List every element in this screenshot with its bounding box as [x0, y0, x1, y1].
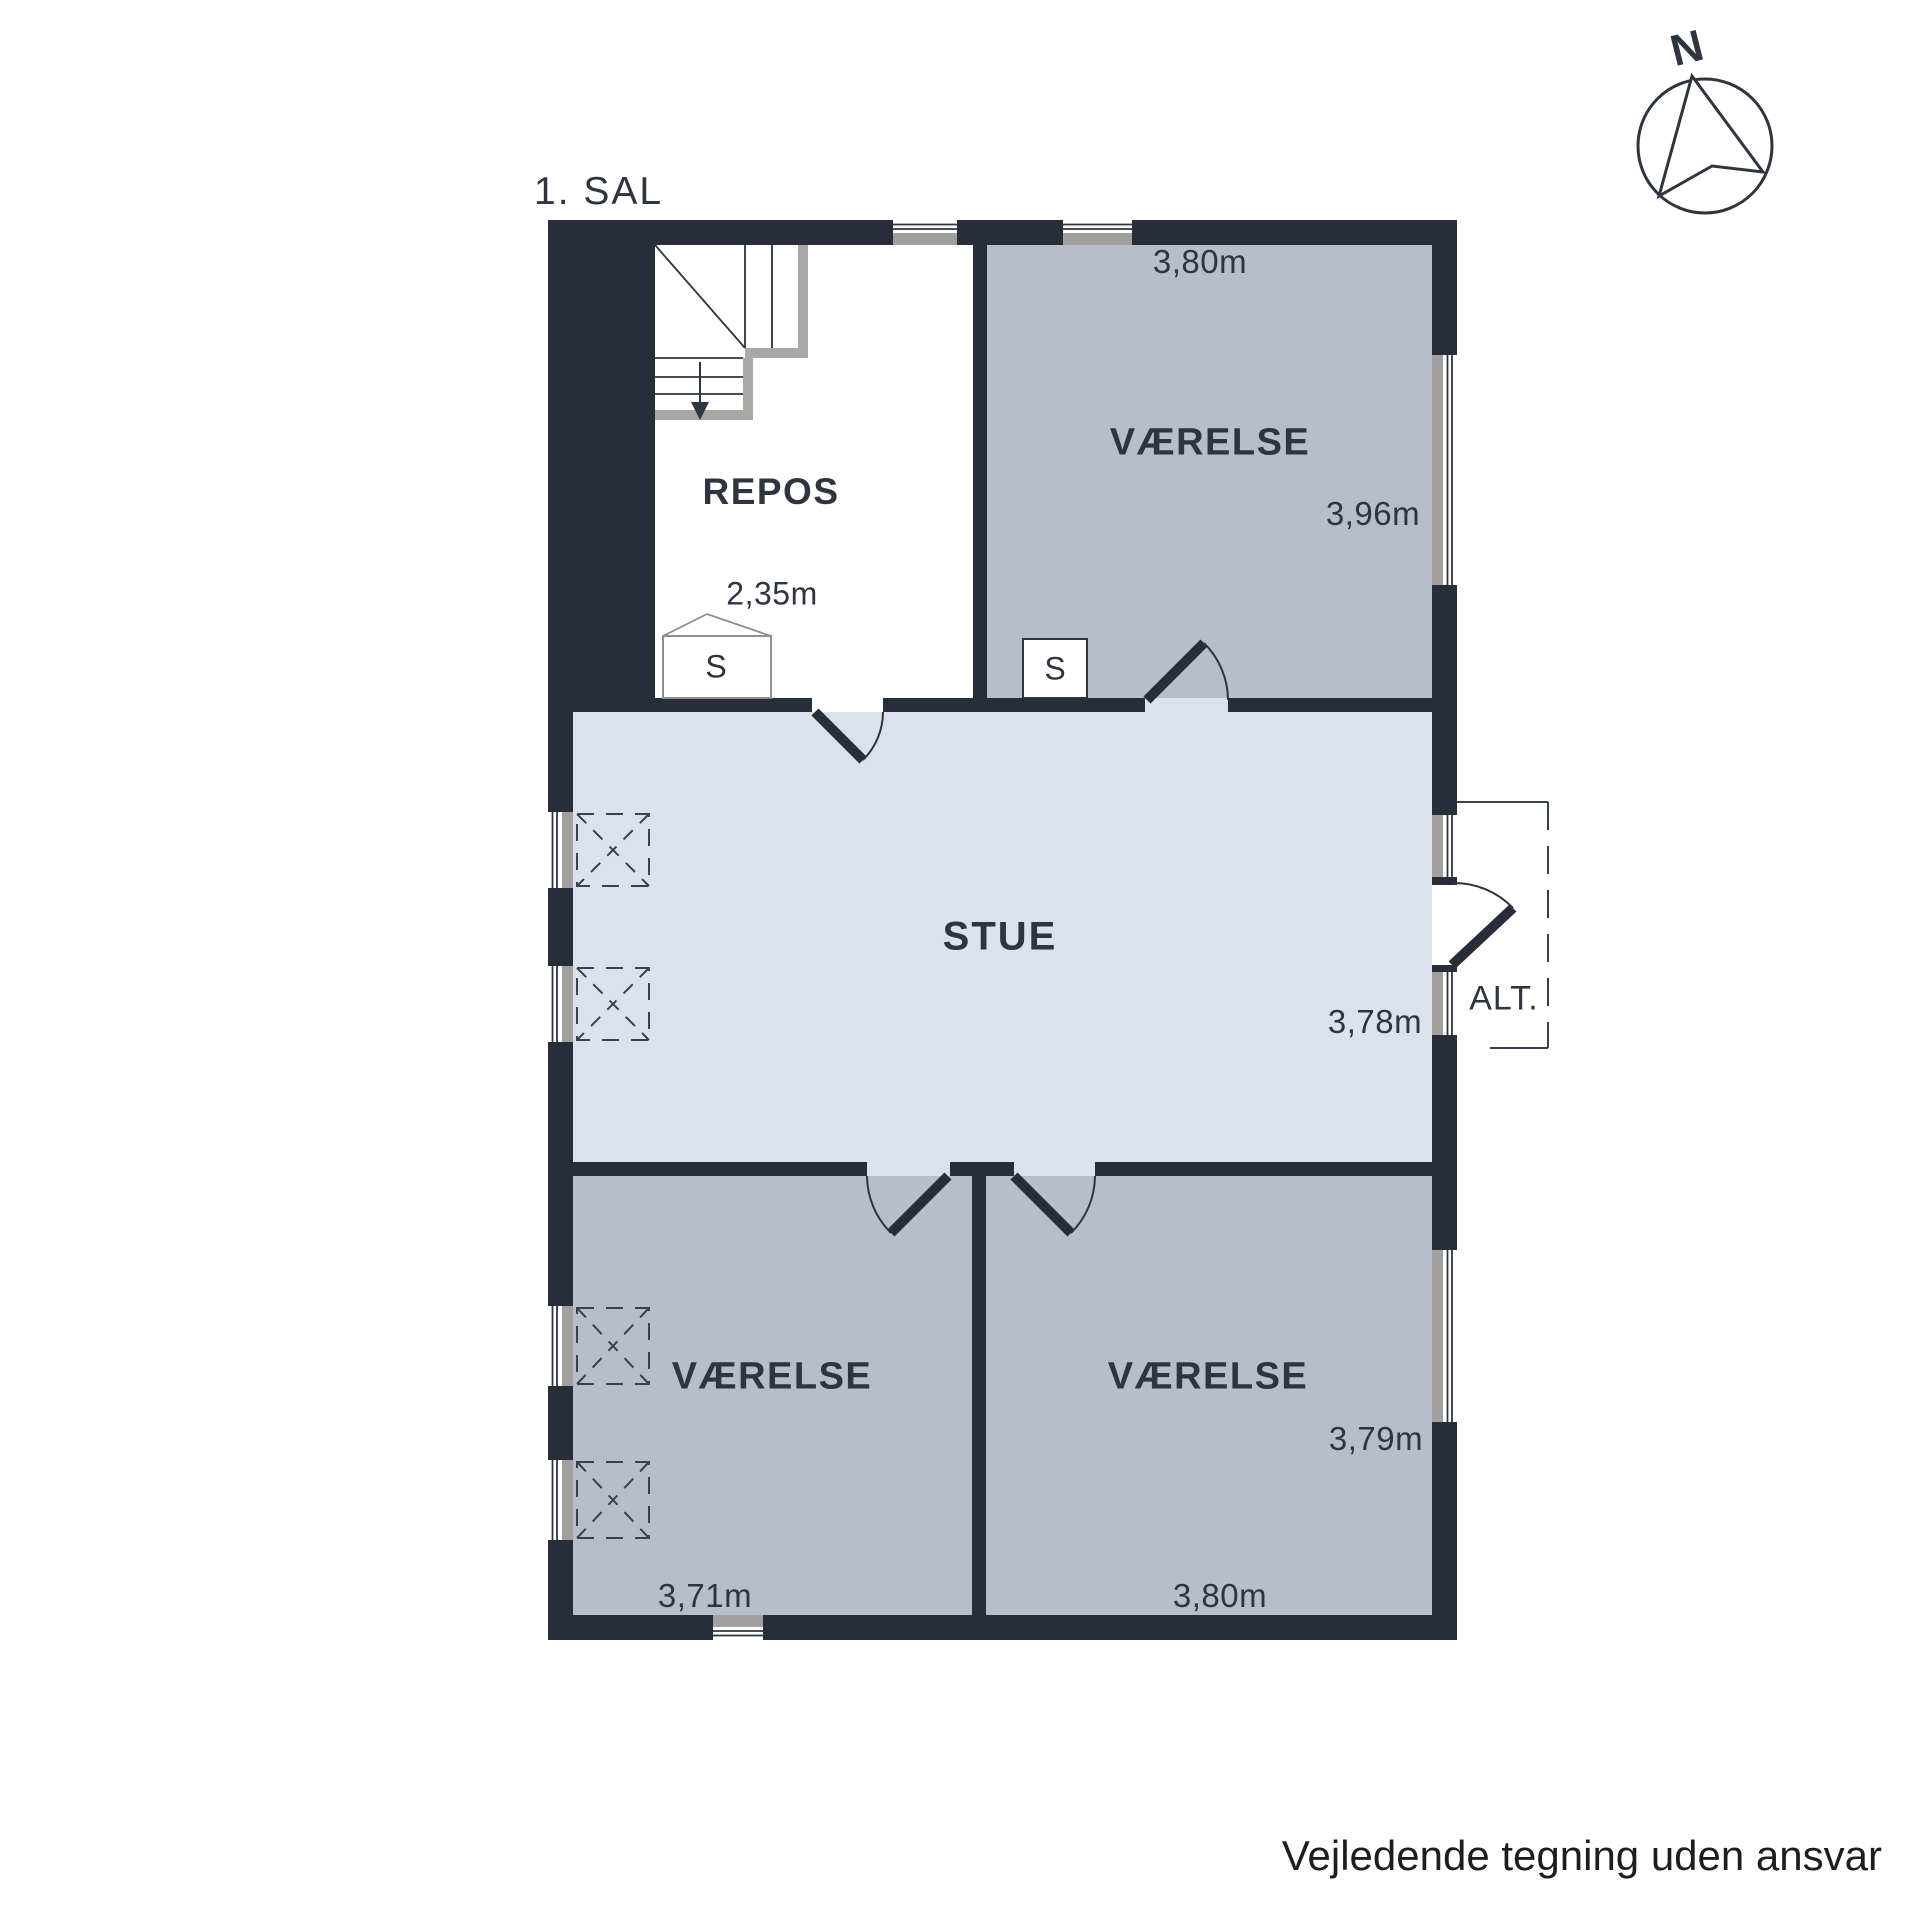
room-label-balcony: ALT.: [1469, 980, 1539, 1019]
window-right-bedroom-se: [1432, 1250, 1457, 1422]
floorplan-page: 1. SAL N REPOS 2,35m S VÆRELSE 3,80m 3,9…: [0, 0, 1920, 1920]
dim-repos-width: 2,35m: [726, 576, 817, 613]
disclaimer-text: Vejledende tegning uden ansvar: [1282, 1832, 1882, 1880]
closet-label-repos: S: [705, 649, 726, 686]
dim-bedroom-ne-top: 3,80m: [1153, 243, 1247, 281]
window-left-living-lower: [548, 966, 573, 1042]
room-label-bedroom-se: VÆRELSE: [1108, 1356, 1309, 1399]
floorplan-drawing: [0, 0, 1920, 1920]
compass-icon: [1638, 76, 1772, 213]
dim-bedroom-se-right: 3,79m: [1329, 1420, 1423, 1458]
room-label-bedroom-sw: VÆRELSE: [672, 1356, 873, 1399]
window-right-living-upper: [1432, 815, 1457, 877]
window-left-living-upper: [548, 812, 573, 888]
room-label-bedroom-ne: VÆRELSE: [1110, 422, 1311, 465]
dim-living-right: 3,78m: [1328, 1003, 1422, 1041]
window-top-bedroom-ne: [1063, 220, 1132, 245]
window-top-repos: [893, 220, 957, 245]
closet-label-bedroom-ne: S: [1044, 651, 1065, 688]
room-label-repos: REPOS: [702, 471, 839, 513]
door-balcony: [1452, 883, 1513, 965]
dim-bedroom-ne-right: 3,96m: [1326, 495, 1420, 533]
room-label-living: STUE: [943, 915, 1058, 960]
window-left-bedroom-sw-upper: [548, 1306, 573, 1386]
dim-bedroom-se-bottom: 3,80m: [1173, 1577, 1267, 1615]
window-right-bedroom-ne: [1432, 355, 1457, 585]
floor-title: 1. SAL: [534, 170, 663, 214]
window-right-living-lower: [1432, 972, 1457, 1035]
window-bottom-bedroom-sw: [713, 1615, 763, 1640]
window-left-bedroom-sw-lower: [548, 1460, 573, 1540]
dim-bedroom-sw-bottom: 3,71m: [658, 1577, 752, 1615]
